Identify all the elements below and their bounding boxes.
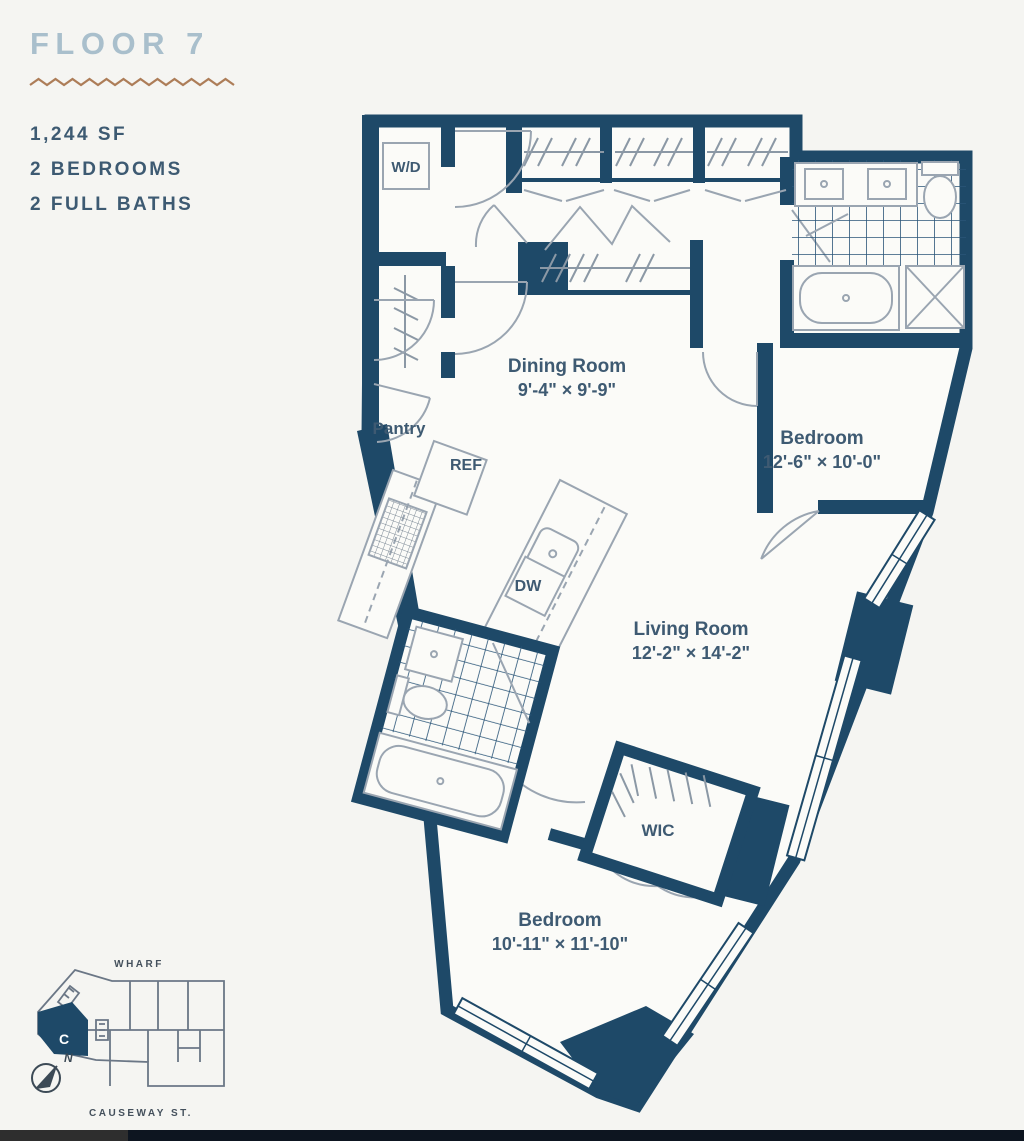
wall-dining-bedroom [757,343,773,513]
toilet-bowl-icon [924,176,956,218]
wall-bath1-left-bottom [780,260,794,348]
label-refrigerator: REF [450,457,482,474]
bath2-faucet-icon [430,650,437,657]
header: FLOOR 7 1,244 SF 2 BEDROOMS 2 FULL BATHS [30,26,234,215]
faucet-left-icon [821,181,827,187]
label-pantry: Pantry [373,419,426,438]
floorplan-canvas: FLOOR 7 1,244 SF 2 BEDROOMS 2 FULL BATHS [0,0,1024,1141]
room-bedroom1-name: Bedroom [780,428,863,449]
wall-bedroom-living [818,500,932,514]
wall-hallcloset-right [690,240,703,348]
wall-closet-divider2 [693,121,705,183]
bathtub-drain [843,295,849,301]
key-plan: WHARF C N CAUSEWAY ST. [32,959,224,1119]
wall-wd-linen [368,252,446,266]
room-living-dims: 12'-2" × 14'-2" [632,643,750,663]
bath2-tub-drain [437,777,444,784]
summary-bathrooms: 2 FULL BATHS [30,194,193,215]
wall-linen-right [441,266,455,318]
summary-bedrooms: 2 BEDROOMS [30,159,183,180]
faucet-right-icon [884,181,890,187]
keyplan-street-top: WHARF [114,959,164,970]
wall-bath1-bottom [792,333,968,348]
label-dishwasher: DW [515,578,543,595]
toilet-tank-icon [922,162,958,175]
wall-closet-front [508,178,790,182]
room-dining-dims: 9'-4" × 9'-9" [518,380,616,400]
page-title: FLOOR 7 [30,26,210,61]
wall-wd-right [441,121,455,167]
keyplan-unit-label: C [59,1031,69,1047]
label-washer-dryer: W/D [391,159,420,176]
room-living-name: Living Room [633,619,748,640]
bathroom1 [792,160,966,330]
floorplan-page: FLOOR 7 1,244 SF 2 BEDROOMS 2 FULL BATHS [0,0,1024,1141]
bottom-bar-left [0,1130,128,1141]
wall-left [362,115,379,441]
room-bedroom2-name: Bedroom [518,910,601,931]
keyplan-street-bottom: CAUSEWAY ST. [89,1108,193,1119]
zigzag-divider [30,79,234,85]
compass-north-label: N [64,1051,73,1065]
room-bedroom2-dims: 10'-11" × 11'-10" [492,934,628,954]
compass: N [32,1051,73,1092]
bottom-bar [0,1130,1024,1141]
bottom-bar-main [0,1130,1024,1141]
room-bedroom1-dims: 12'-6" × 10'-0" [763,452,881,472]
label-wic: WIC [641,821,674,840]
wall-hallcloset-bottom [518,290,692,295]
keyplan-unit-c [38,1002,88,1056]
room-dining-name: Dining Room [508,356,626,377]
summary-area: 1,244 SF [30,124,127,145]
wall-linen-right2 [441,352,455,378]
wall-bath1-left-top [780,157,794,205]
